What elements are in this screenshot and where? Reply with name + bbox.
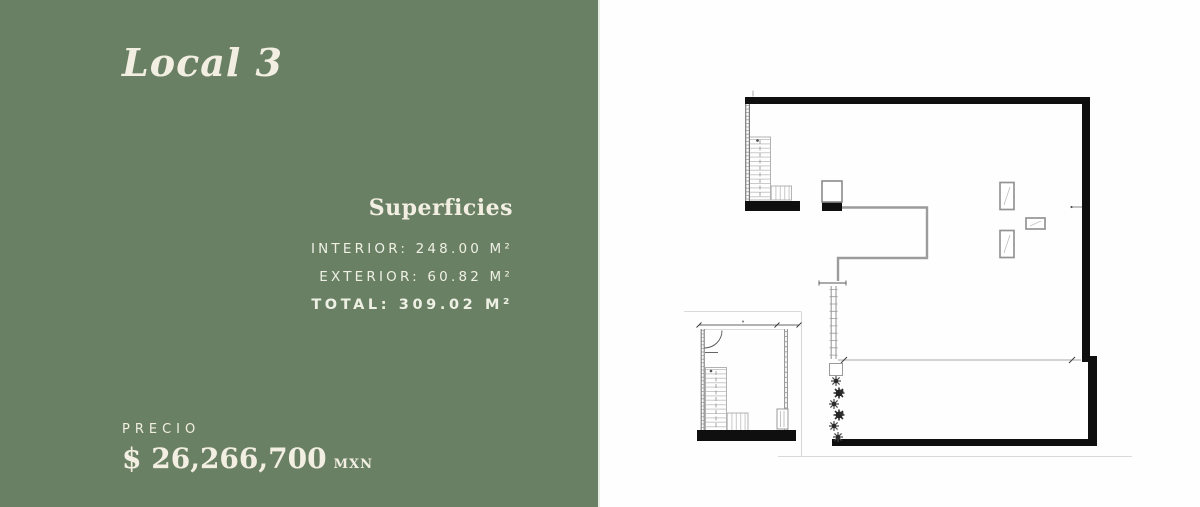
price-value: $ 26,266,700 <box>122 442 327 475</box>
main-walls <box>745 97 1097 446</box>
main-staircase <box>750 137 792 200</box>
superficies-heading: Superficies <box>311 195 513 221</box>
terrace-plants <box>829 376 845 442</box>
floor-plan-panel <box>600 0 1200 507</box>
superficies-block: Superficies INTERIOR: 248.00 M² EXTERIOR… <box>311 195 513 319</box>
interior-partition <box>838 208 927 282</box>
main-left-wall <box>746 104 750 201</box>
terrace-dim-line <box>838 357 1081 363</box>
page-title: Local 3 <box>122 42 283 84</box>
info-panel: Local 3 Superficies INTERIOR: 248.00 M² … <box>0 0 600 507</box>
price-amount: $ 26,266,700MXN <box>122 442 373 475</box>
price-label: PRECIO <box>122 422 373 437</box>
window-wall <box>831 286 836 359</box>
price-block: PRECIO $ 26,266,700MXN <box>122 422 373 475</box>
page: Local 3 Superficies INTERIOR: 248.00 M² … <box>0 0 1200 507</box>
price-currency: MXN <box>334 457 373 472</box>
floor-plan-drawing <box>600 0 1200 507</box>
lower-plan <box>697 321 802 442</box>
superficies-total: TOTAL: 309.02 M² <box>311 291 513 319</box>
structural-columns <box>1000 183 1045 258</box>
partition-dim-tick <box>819 281 846 286</box>
superficies-exterior: EXTERIOR: 60.82 M² <box>311 263 513 291</box>
superficies-interior: INTERIOR: 248.00 M² <box>311 235 513 263</box>
right-wall-tick <box>1070 206 1082 208</box>
planter-box <box>830 364 843 376</box>
door-frame <box>822 181 842 202</box>
